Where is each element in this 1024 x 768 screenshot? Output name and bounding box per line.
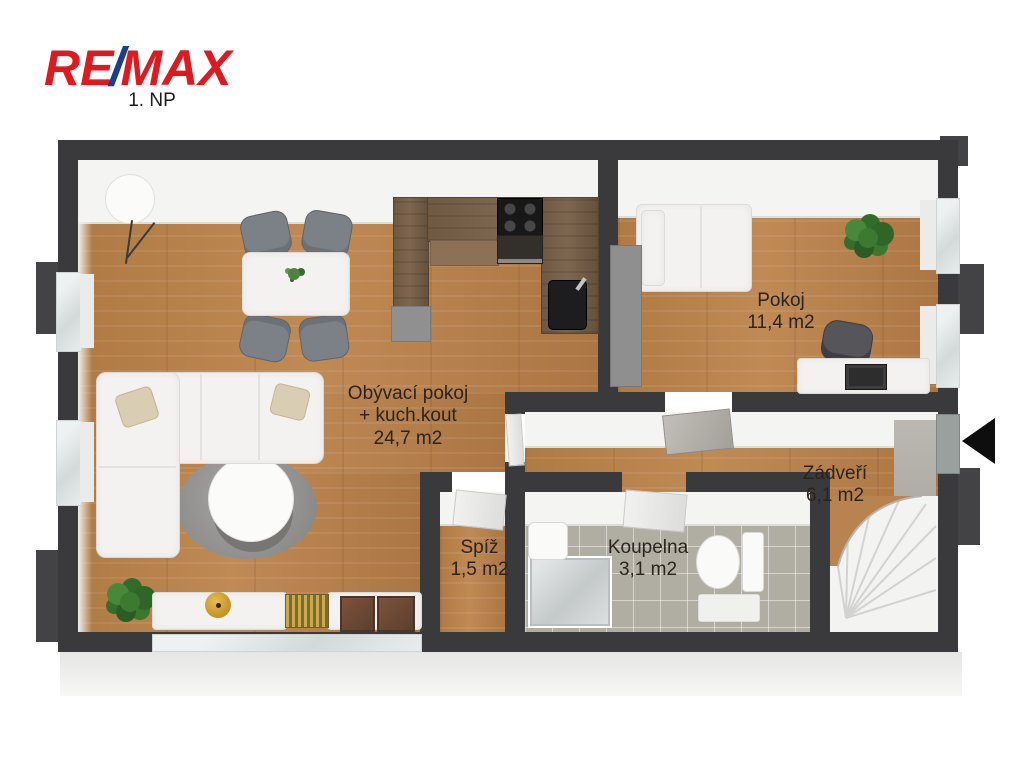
outer-wall-top bbox=[58, 140, 958, 160]
window bbox=[936, 304, 960, 388]
bed-pillow bbox=[641, 210, 665, 286]
potted-plant bbox=[858, 228, 878, 248]
dining-table bbox=[242, 252, 350, 316]
room-name: Koupelna bbox=[573, 537, 723, 559]
sofa-seam bbox=[258, 374, 260, 460]
kitchen-appliance bbox=[391, 306, 431, 342]
room-label-pantry: Spíž 1,5 m2 bbox=[422, 537, 537, 582]
wall-living-hall bbox=[505, 392, 525, 414]
exterior-wall-stub bbox=[956, 468, 980, 545]
window-sill bbox=[920, 200, 936, 270]
room-label-hall: Zádveří 6,1 m2 bbox=[760, 463, 910, 508]
window bbox=[56, 272, 82, 352]
room-area: 24,7 m2 bbox=[333, 428, 483, 450]
room-area: 11,4 m2 bbox=[706, 312, 856, 334]
entrance-arrow-icon bbox=[962, 418, 995, 464]
table-plant bbox=[288, 268, 300, 280]
door-pantry bbox=[452, 489, 506, 530]
kitchen-cabinet bbox=[393, 197, 429, 312]
room-name: + kuch.kout bbox=[333, 405, 483, 427]
room-name: Zádveří bbox=[760, 463, 910, 485]
exterior-wall-stub bbox=[956, 264, 984, 334]
dining-chair bbox=[297, 313, 351, 363]
room-label-bathroom: Koupelna 3,1 m2 bbox=[573, 537, 723, 582]
outer-wall-left bbox=[58, 140, 78, 652]
wall-hall-north bbox=[732, 392, 938, 412]
stove-cooktop bbox=[497, 198, 543, 237]
window bbox=[56, 420, 82, 506]
door-bedroom bbox=[662, 409, 734, 456]
terrace-window bbox=[152, 634, 422, 652]
radiator bbox=[285, 594, 329, 628]
door-living-hall bbox=[505, 414, 525, 467]
storage-box bbox=[340, 596, 375, 632]
room-area: 1,5 m2 bbox=[422, 559, 537, 581]
vase bbox=[205, 592, 231, 618]
bath-mat bbox=[698, 594, 760, 622]
floor-label: 1. NP bbox=[44, 90, 260, 112]
sofa-seam bbox=[200, 374, 202, 460]
kitchen-shelf bbox=[430, 240, 499, 266]
wall-hall-north bbox=[505, 392, 665, 412]
wardrobe bbox=[610, 245, 642, 387]
room-area: 6,1 m2 bbox=[760, 485, 910, 507]
toilet-tank bbox=[742, 532, 764, 592]
oven bbox=[497, 235, 543, 264]
window bbox=[936, 198, 960, 274]
staircase bbox=[830, 496, 938, 632]
floorplan-page: Obývací pokoj + kuch.kout 24,7 m2 Pokoj … bbox=[0, 0, 1024, 768]
kitchen-sink bbox=[548, 280, 587, 330]
door-bathroom bbox=[622, 489, 687, 532]
sofa-seam bbox=[98, 466, 176, 468]
room-name: Spíž bbox=[422, 537, 537, 559]
remax-logo: RE/MAX bbox=[44, 40, 232, 94]
storage-box bbox=[377, 596, 415, 632]
bed-seam bbox=[700, 206, 702, 288]
room-label-bedroom: Pokoj 11,4 m2 bbox=[706, 290, 856, 335]
room-name: Pokoj bbox=[706, 290, 856, 312]
logo-max: MAX bbox=[120, 40, 231, 96]
room-label-living: Obývací pokoj + kuch.kout 24,7 m2 bbox=[333, 383, 483, 450]
exterior-wall-stub bbox=[36, 550, 58, 642]
laptop bbox=[845, 364, 887, 390]
entrance-door bbox=[936, 414, 960, 474]
floor-lamp bbox=[105, 174, 155, 224]
potted-plant bbox=[120, 592, 140, 612]
logo-re: RE bbox=[44, 40, 113, 96]
exterior-wall-stub bbox=[36, 262, 58, 334]
wall-pantry-bath-north bbox=[505, 472, 622, 492]
room-area: 3,1 m2 bbox=[573, 559, 723, 581]
window-sill bbox=[80, 422, 94, 502]
coffee-table bbox=[208, 456, 294, 542]
room-name: Obývací pokoj bbox=[333, 383, 483, 405]
building-facade bbox=[60, 652, 962, 696]
window-sill bbox=[80, 274, 94, 348]
